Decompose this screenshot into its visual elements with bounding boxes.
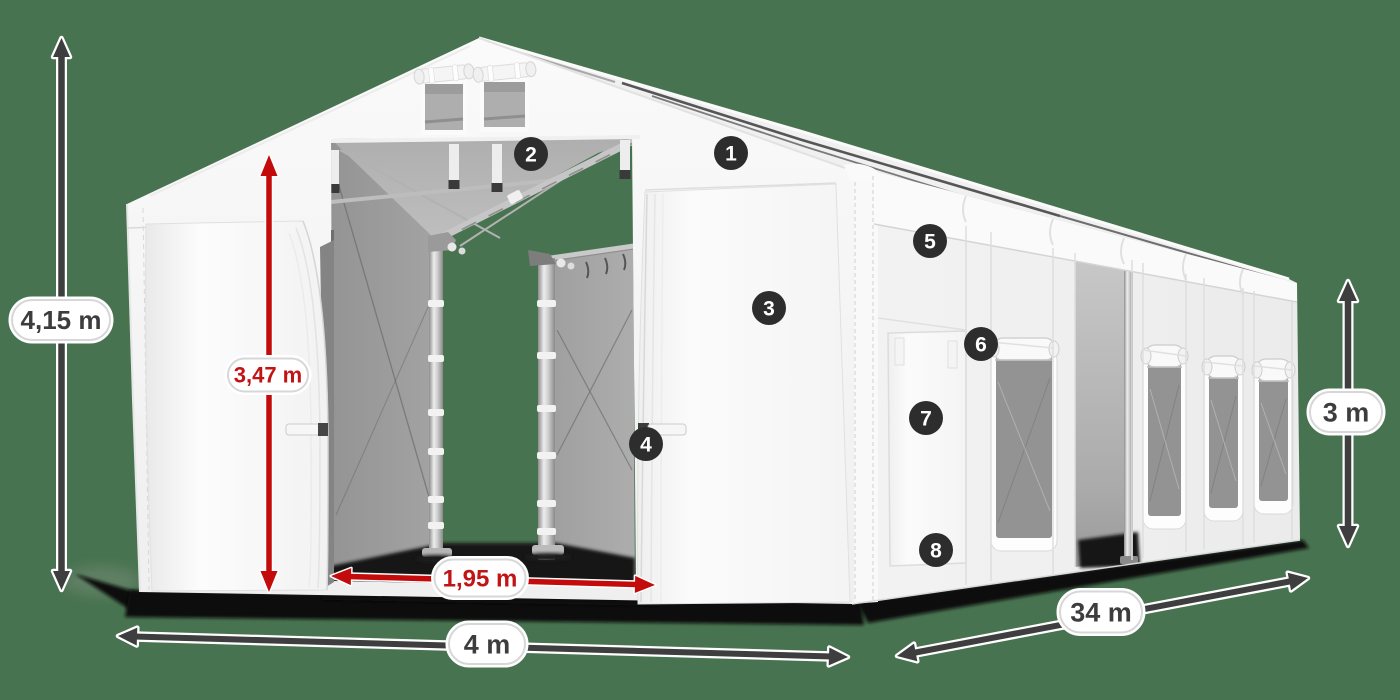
svg-text:5: 5 bbox=[924, 230, 936, 253]
svg-text:34 m: 34 m bbox=[1070, 597, 1132, 627]
svg-text:4 m: 4 m bbox=[464, 629, 511, 659]
svg-text:2: 2 bbox=[525, 143, 537, 166]
svg-text:3: 3 bbox=[763, 297, 775, 320]
svg-text:3,47 m: 3,47 m bbox=[234, 363, 303, 388]
svg-text:6: 6 bbox=[975, 333, 987, 356]
svg-text:1,95 m: 1,95 m bbox=[443, 565, 518, 592]
svg-text:3 m: 3 m bbox=[1323, 397, 1370, 427]
svg-text:1: 1 bbox=[725, 142, 737, 165]
svg-text:4: 4 bbox=[640, 433, 652, 456]
svg-text:8: 8 bbox=[930, 539, 942, 562]
svg-text:7: 7 bbox=[920, 407, 932, 430]
svg-text:4,15 m: 4,15 m bbox=[21, 305, 102, 335]
